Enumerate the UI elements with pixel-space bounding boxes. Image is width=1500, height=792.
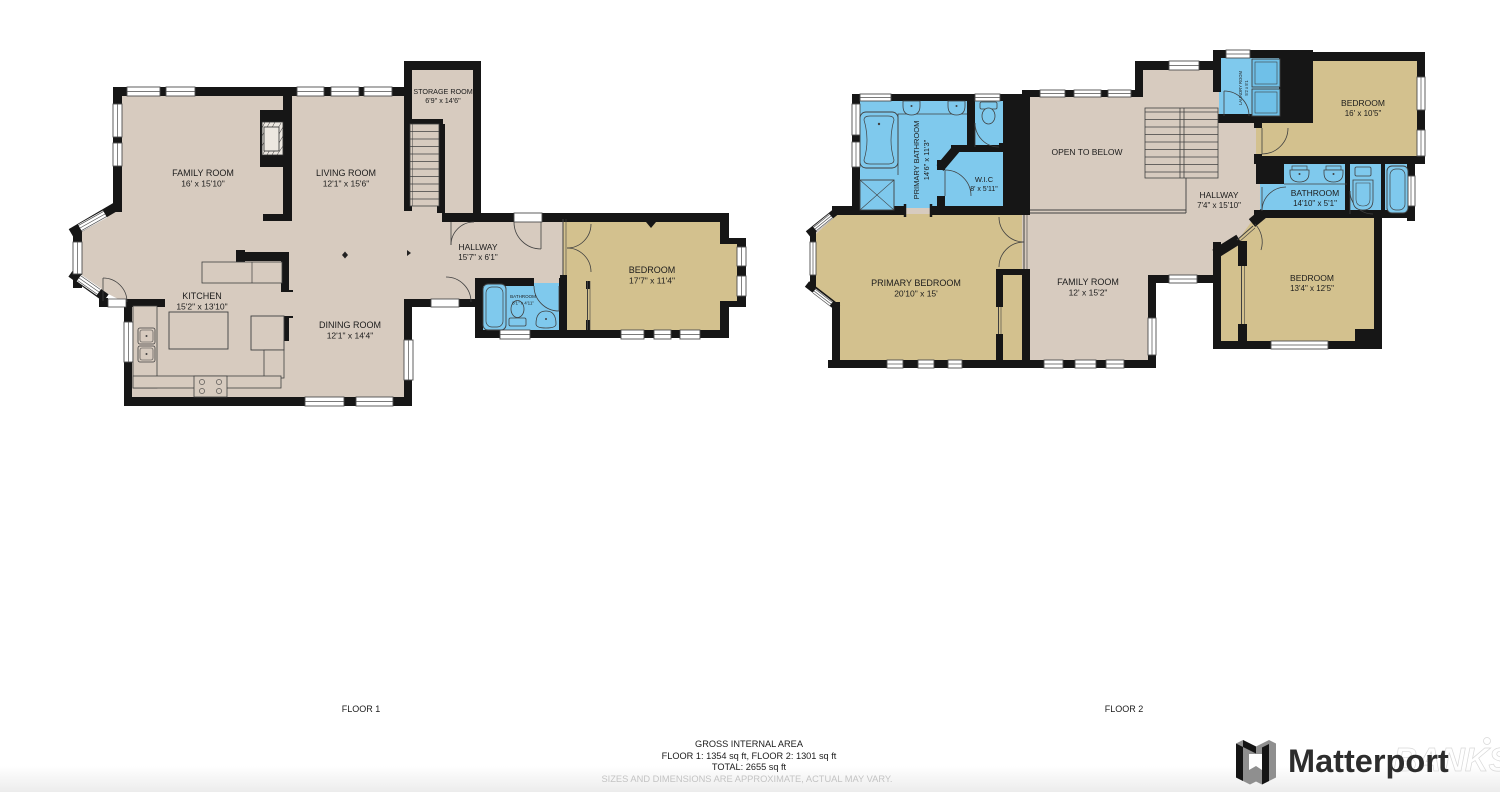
svg-text:DINING ROOM: DINING ROOM — [319, 320, 381, 330]
svg-text:16' x 10'5": 16' x 10'5" — [1345, 109, 1382, 118]
svg-text:LAUNDRY ROOM: LAUNDRY ROOM — [1238, 70, 1243, 105]
svg-text:LIVING ROOM: LIVING ROOM — [316, 168, 376, 178]
svg-text:BATHROOM: BATHROOM — [510, 294, 536, 299]
svg-text:BEDROOM: BEDROOM — [1290, 273, 1334, 283]
svg-text:STORAGE ROOM: STORAGE ROOM — [413, 87, 472, 96]
svg-text:BATHROOM: BATHROOM — [1291, 188, 1339, 198]
svg-text:BEDROOM: BEDROOM — [629, 265, 676, 275]
svg-text:PRIMARY BEDROOM: PRIMARY BEDROOM — [871, 278, 961, 288]
svg-text:FAMILY ROOM: FAMILY ROOM — [172, 168, 234, 178]
svg-text:OPEN TO BELOW: OPEN TO BELOW — [1051, 147, 1122, 157]
svg-text:8'1" x 4'11": 8'1" x 4'11" — [512, 301, 534, 306]
svg-text:12'1" x 15'6": 12'1" x 15'6" — [323, 179, 370, 189]
svg-text:6'9" x 14'6": 6'9" x 14'6" — [425, 96, 461, 105]
svg-text:12'1" x 14'4": 12'1" x 14'4" — [327, 331, 374, 341]
svg-text:12' x 15'2": 12' x 15'2" — [1069, 288, 1108, 298]
svg-text:7'4" x 15'10": 7'4" x 15'10" — [1197, 201, 1241, 210]
svg-text:PRIMARY BATHROOM: PRIMARY BATHROOM — [912, 121, 921, 200]
svg-text:TOTAL: 2655 sq ft: TOTAL: 2655 sq ft — [712, 762, 787, 772]
svg-text:20'10" x 15': 20'10" x 15' — [894, 289, 938, 299]
svg-text:14'6" x 11'3": 14'6" x 11'3" — [922, 139, 931, 180]
svg-text:16' x 15'10": 16' x 15'10" — [181, 179, 225, 189]
svg-text:SIZES AND DIMENSIONS ARE APPRO: SIZES AND DIMENSIONS ARE APPROXIMATE, AC… — [601, 774, 892, 784]
svg-text:15'2" x 13'10": 15'2" x 13'10" — [176, 302, 227, 312]
svg-text:W.I.C: W.I.C — [975, 175, 994, 184]
svg-text:15'7" x 6'1": 15'7" x 6'1" — [458, 253, 498, 262]
svg-text:KITCHEN: KITCHEN — [182, 291, 222, 301]
svg-text:8' x 5'11": 8' x 5'11" — [970, 186, 998, 193]
svg-text:5'2 x 5'1: 5'2 x 5'1 — [1244, 80, 1249, 96]
svg-text:13'4" x 12'5": 13'4" x 12'5" — [1290, 284, 1334, 293]
svg-text:14'10" x 5'1": 14'10" x 5'1" — [1293, 199, 1337, 208]
svg-text:17'7" x 11'4": 17'7" x 11'4" — [629, 276, 675, 286]
svg-text:HALLWAY: HALLWAY — [1199, 190, 1238, 200]
svg-text:FAMILY ROOM: FAMILY ROOM — [1057, 277, 1119, 287]
svg-text:Matterport: Matterport — [1288, 743, 1449, 779]
svg-text:BEDROOM: BEDROOM — [1341, 98, 1385, 108]
svg-text:FLOOR 1: 1354 sq ft, FLOOR 2:: FLOOR 1: 1354 sq ft, FLOOR 2: 1301 sq ft — [662, 751, 837, 761]
svg-text:GROSS INTERNAL AREA: GROSS INTERNAL AREA — [695, 739, 804, 749]
svg-text:FLOOR 1: FLOOR 1 — [342, 704, 381, 714]
svg-text:HALLWAY: HALLWAY — [458, 242, 497, 252]
svg-text:FLOOR 2: FLOOR 2 — [1105, 704, 1144, 714]
